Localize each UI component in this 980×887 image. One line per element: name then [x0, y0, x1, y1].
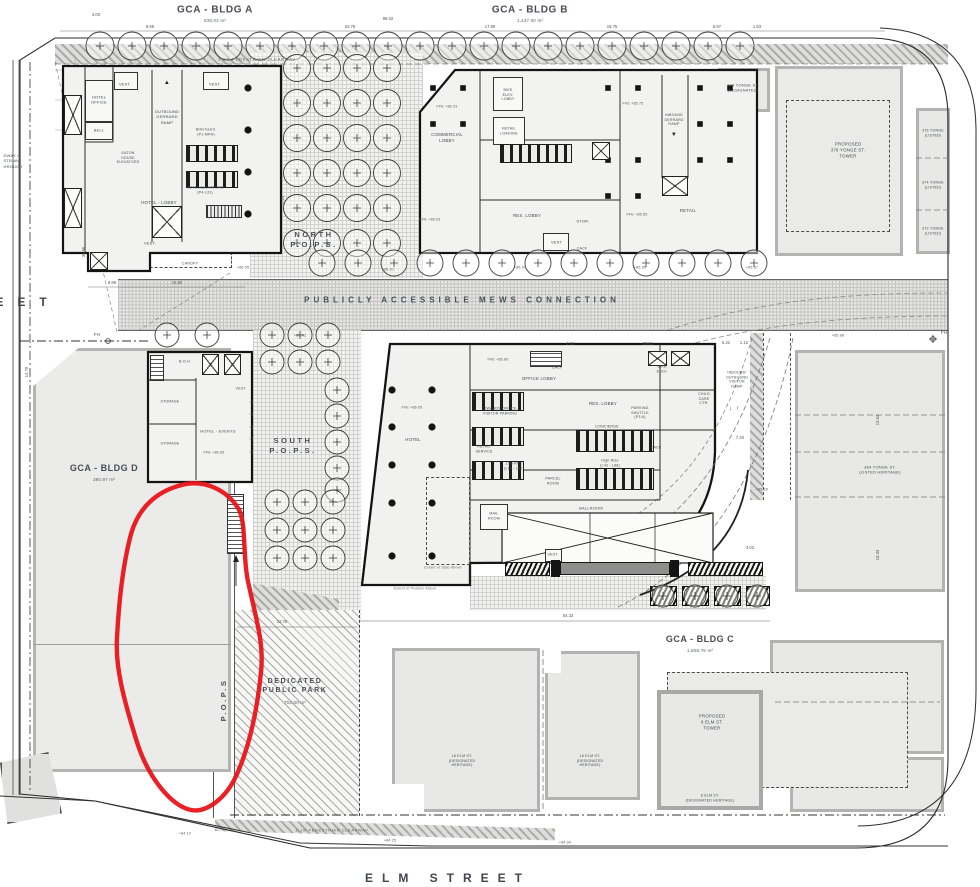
label-mail-room: MAIL ROOM	[488, 511, 500, 520]
bldg-c-area: 1,808.76 m²	[687, 648, 713, 654]
label-hotel-lobby: HOTEL - LOBBY	[141, 200, 177, 206]
fire-hydrant-icon	[104, 335, 937, 343]
dim-label: 20.51	[643, 341, 653, 347]
dim-label: 1.12	[740, 340, 748, 346]
bench-markers: ◁ ◁ ◁ ◁ ◁	[249, 396, 252, 458]
dim-label: 13.54	[875, 415, 881, 425]
label-storage-1: STORAGE	[161, 400, 180, 405]
dim-label: 15.80	[172, 280, 182, 286]
label-commercial-lobby: COMMERCIAL LOBBY	[424, 132, 470, 144]
label-retail: RETAIL	[680, 208, 696, 214]
bldg-c-title: GCA - BLDG C	[666, 634, 734, 646]
label-ballroom: BALLROOM	[579, 505, 603, 510]
bldg-b-area: 1,437.00 m²	[517, 18, 543, 24]
label-visitor-ramp: INBOUND/ OUTBOUND VISITOR RAMP	[726, 371, 748, 390]
elevator-shaft	[202, 354, 219, 375]
ramp-arrow-up: ▲	[164, 80, 170, 88]
building-b-outline	[420, 70, 757, 253]
label-child-care: CHILD CARE CTR.	[698, 392, 710, 406]
elevation-label: +85.98	[832, 334, 844, 339]
label-376-yonge: 376 YONGE (LISTED)	[922, 128, 944, 137]
mews-label: PUBLICLY ACCESSIBLE MEWS CONNECTION	[304, 296, 620, 307]
dim-label: 14.70	[24, 367, 30, 377]
label-stor: STOR.	[576, 218, 589, 223]
dim-label: 8.85	[108, 280, 116, 286]
label-cacf-b: CACF	[577, 247, 588, 252]
label-parcel-room: PARCEL ROOM	[545, 476, 560, 485]
extent-slab-note: Extent of Slab Above	[424, 566, 461, 571]
label-18elm: 18 ELM ST. (DESIGNATED HERITAGE)	[449, 754, 476, 768]
elevation-label: +84.06	[559, 841, 571, 846]
dim-label: 22.75	[277, 619, 287, 625]
label-bike-elev-tower: BIKE ELEV.	[657, 364, 668, 373]
bldg-d-area: 380.97 m²	[93, 477, 115, 483]
elevation-label: +86.01	[382, 268, 394, 273]
visitor-ramp-arrows: ↓↑	[729, 406, 743, 414]
elevation-label: +86.02	[294, 334, 306, 339]
label-towards-office: TOWARDS OFFICE / VISITOR PARKING	[481, 406, 519, 415]
label-vest-b: VEST.	[551, 239, 563, 244]
label-boh: B.O.H.	[179, 360, 191, 365]
bldg-b-title: GCA - BLDG B	[492, 3, 568, 16]
dim-label: 36.96	[81, 247, 87, 257]
fh-label: FH	[94, 332, 100, 338]
label-boh-elev: BOH ELEV. (P1-MPH)	[196, 127, 216, 136]
planter-strip-w	[505, 562, 550, 576]
dim-label: 17.90	[485, 24, 495, 30]
left-edge-note: DWAY / STRIAN HROUGH	[4, 153, 23, 169]
elevation-label: FFE +86.03	[420, 218, 441, 223]
ramp-arrow-down: ▼	[671, 132, 677, 140]
stairs	[150, 355, 164, 381]
label-eaton-elev: EATON HOUSE ELEVATORS	[117, 151, 140, 165]
elevation-label: +85.85	[634, 266, 646, 271]
label-vest-tower: VEST.	[548, 553, 559, 558]
elevator-bank	[186, 145, 238, 162]
clearway-bottom-label: 2.1m PEDESTRIAN CLEARWAY	[295, 827, 368, 832]
loading-canopy	[560, 562, 670, 575]
bldg-a-title: GCA - BLDG A	[177, 3, 253, 16]
stair-shaft	[64, 188, 82, 228]
elevator-bank	[576, 430, 654, 452]
dim-label: 64.33	[563, 613, 573, 619]
label-vest-nw: VEST.	[119, 81, 131, 86]
label-canopy: CANOPY	[182, 262, 198, 267]
label-372-yonge: 372 YONGE (LISTED)	[922, 226, 944, 235]
south-pops-label: SOUTH P.O.P.S.	[269, 436, 316, 456]
label-res-lobby-tower: RES. LOBBY	[589, 401, 617, 407]
hotel-extent-dash	[426, 477, 470, 565]
elevator-bank	[576, 468, 654, 490]
label-low-rise: Low-Rise (L17 - L42)	[504, 461, 524, 470]
label-cacf-1: CACF	[552, 366, 563, 371]
label-bike-elev-lobby: BIKE ELEV. LOBBY	[502, 88, 515, 102]
label-hotel: HOTEL	[405, 437, 421, 443]
bldg-d-title: GCA - BLDG D	[70, 463, 138, 475]
escalator-shaft	[152, 206, 182, 238]
dim-label: 18.75	[607, 24, 617, 30]
label-hotel-office: HOTEL OFFICE	[91, 95, 107, 106]
elevation-label: +85.67	[746, 266, 758, 271]
stair-shaft	[64, 95, 82, 135]
dim-label: 22.78	[345, 24, 355, 30]
dim-label: 18.33	[875, 550, 881, 560]
dim-label: 2.14	[280, 196, 286, 204]
elevator-bank	[472, 427, 524, 446]
elevation-label: FFE +86.06	[204, 451, 225, 456]
lobby-mat	[206, 205, 242, 218]
label-364-yonge: 364 YONGE ST. (LISTED HERITAGE)	[859, 465, 900, 476]
west-pops-label: P.O.P.S	[219, 679, 229, 722]
label-378-designated: 378 YONGE ST. (DESIGNATED)	[727, 83, 759, 94]
label-inbound-ramp: INBOUND GERRARD RAMP	[664, 113, 683, 127]
label-retail-service: RETAIL SERVICE	[475, 444, 492, 453]
label-outbound-ramp: OUTBOUND GERRARD RAMP	[155, 109, 180, 125]
elevation-label: +84.25	[384, 839, 396, 844]
label-vest-s: VEST.	[144, 240, 156, 245]
dim-label: 4.91	[566, 341, 574, 347]
elevation-label: +85.20	[756, 488, 768, 493]
fh-label: FH	[941, 330, 947, 336]
label-374-yonge: 374 YONGE (LISTED)	[922, 180, 944, 189]
label-8elm-tower: PROPOSED 8 ELM ST. TOWER	[699, 713, 726, 730]
stairs	[530, 351, 562, 367]
label-vest-d: VEST.	[236, 387, 247, 392]
label-8elm: 8 ELM ST. (DESIGNATED HERITAGE)	[686, 793, 735, 802]
label-storage-2: STORAGE	[161, 442, 180, 447]
planter-strip-e	[688, 562, 763, 576]
elevator-shaft	[671, 351, 690, 366]
north-pops-label: NORTH P.O.P.S.	[290, 230, 337, 250]
label-bell: BELL	[94, 127, 105, 132]
dim-label: 8.95	[146, 24, 154, 30]
dim-label: 98.02	[383, 16, 393, 22]
elevation-label: FFE +85.80	[488, 358, 509, 363]
dim-label: 6.97	[713, 24, 721, 30]
label-16elm: 16 ELM ST. (DESIGNATED HERITAGE)	[577, 754, 604, 768]
elevation-label: FFE +85.50	[627, 213, 648, 218]
ramp-shaft	[662, 176, 688, 196]
elm-street-label: ELM STREET	[365, 871, 531, 887]
park-label: DEDICATED PUBLIC PARK	[263, 677, 328, 695]
elevator-shaft	[224, 354, 241, 375]
left-street-fragment: EET	[0, 295, 61, 311]
canopy-cap	[551, 560, 560, 577]
outer-street-line	[858, 28, 976, 826]
dim-label: 3.02	[746, 545, 754, 551]
stair-shaft	[90, 252, 108, 270]
canopy-cap	[670, 560, 679, 577]
dim-label: 1.63	[753, 24, 761, 30]
label-high-rise: High Rise (L43 - L88)	[600, 458, 620, 467]
elevation-label: +84.12	[179, 832, 191, 837]
elevation-label: FFE +86.05	[402, 406, 423, 411]
dim-label: 5.31	[722, 340, 730, 346]
elevation-label: FFE +86.03	[437, 105, 458, 110]
label-parking-shuttle: PARKING SHUTTLE (P3-6)	[631, 406, 649, 420]
exterior-stairs	[227, 494, 244, 554]
clearway-top-label: 3.0m PEDESTRIAN CLEARWAY	[218, 56, 296, 61]
elevation-label: +86.00	[514, 266, 526, 271]
label-concierge: CONCIERGE	[595, 425, 619, 430]
label-vest-ne: VEST.	[209, 81, 221, 86]
site-plan: GCA - BLDG A 838.02 m² GCA - BLDG B 1,43…	[0, 0, 980, 887]
dim-label: 7.20	[736, 435, 744, 441]
elevator-bank	[500, 144, 572, 163]
elevator-shaft	[592, 142, 610, 160]
label-office-lobby: OFFICE LOBBY	[522, 376, 556, 382]
elevation-label: +86.05	[237, 266, 249, 271]
label-hotel-events: HOTEL - EVENTS	[200, 428, 236, 433]
label-hotel-elev: HOTEL ELEVATORS (P4-L31)	[187, 185, 224, 194]
elevation-label: FFE +85.75	[623, 102, 644, 107]
dim-label: 4.00	[92, 12, 100, 18]
park-area-label: 702.00 m²	[284, 700, 306, 706]
label-cacf-2: CACF	[651, 446, 662, 451]
bldg-a-area: 838.02 m²	[204, 18, 226, 24]
label-retail-loading: RETAIL LOADING	[500, 126, 518, 135]
label-378-tower: PROPOSED 378 YONGE ST. TOWER	[831, 141, 866, 158]
label-res-lobby-b: RES. LOBBY	[513, 213, 541, 219]
extent-podium-note: Extent of Podium Above	[394, 587, 437, 592]
